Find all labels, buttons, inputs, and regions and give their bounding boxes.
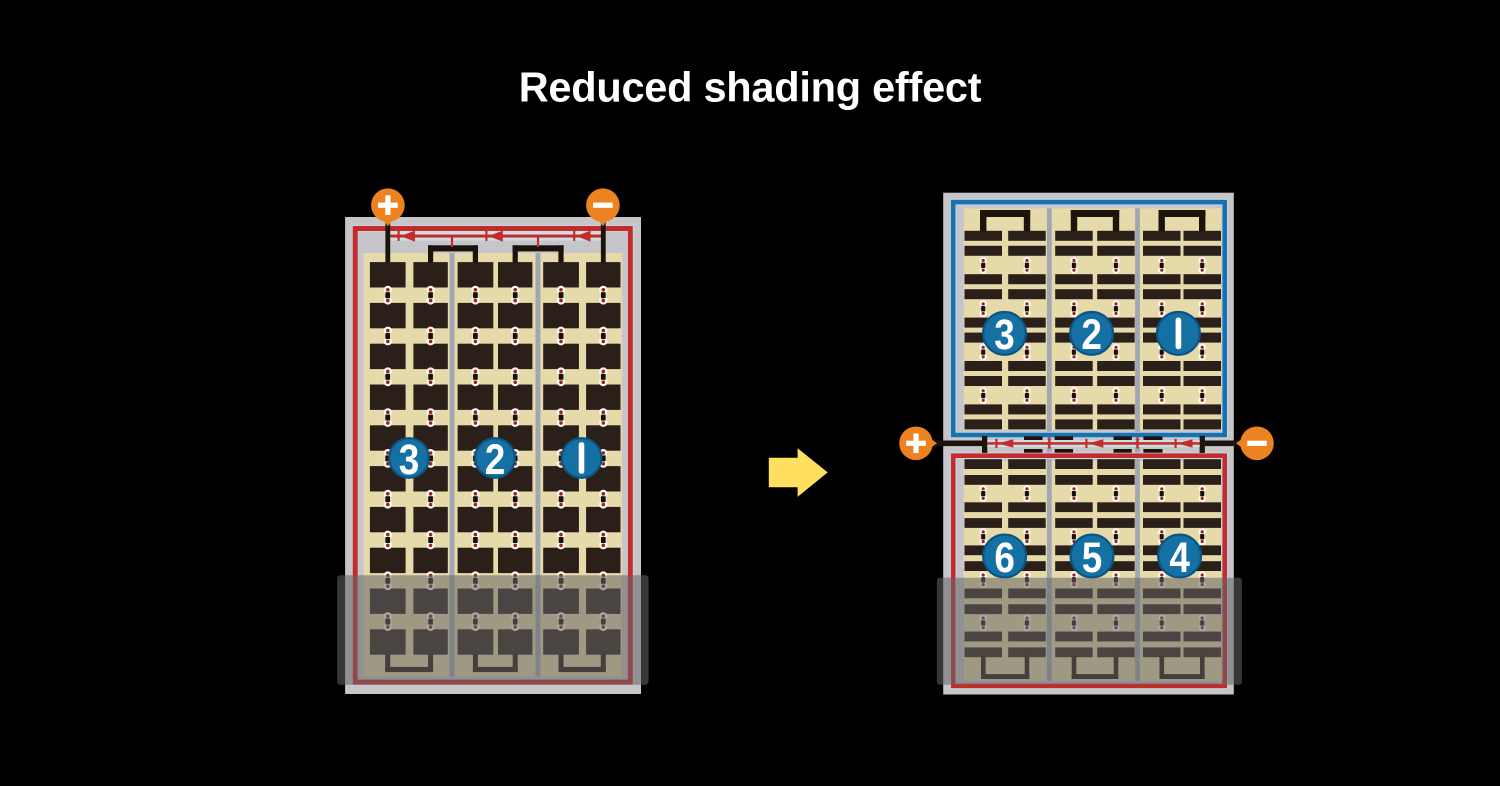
- svg-text:4: 4: [1169, 534, 1190, 582]
- svg-text:6: 6: [994, 534, 1015, 582]
- svg-text:2: 2: [485, 436, 506, 484]
- svg-text:3: 3: [399, 436, 420, 484]
- svg-text:2: 2: [1081, 311, 1102, 359]
- svg-text:Reduced shading effect: Reduced shading effect: [519, 64, 982, 111]
- svg-text:5: 5: [1082, 534, 1103, 582]
- svg-text:3: 3: [994, 311, 1015, 359]
